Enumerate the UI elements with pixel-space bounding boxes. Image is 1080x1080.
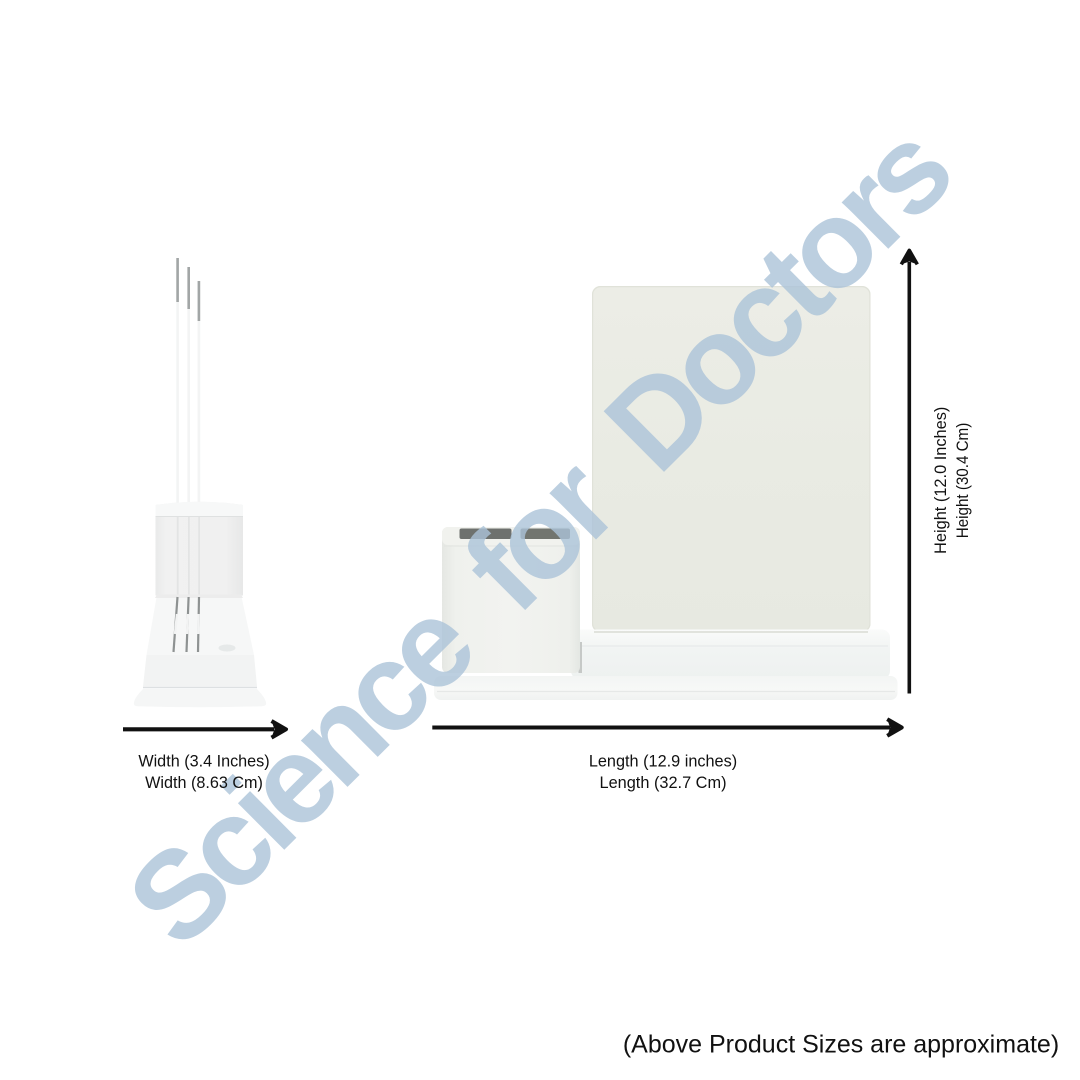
svg-text:Height (30.4 Cm): Height (30.4 Cm) xyxy=(954,423,972,539)
svg-text:Length (32.7 Cm): Length (32.7 Cm) xyxy=(600,774,727,792)
svg-text:Length (12.9 inches): Length (12.9 inches) xyxy=(589,753,737,771)
svg-text:(Above Product Sizes are appro: (Above Product Sizes are approximate) xyxy=(623,1031,1059,1059)
svg-text:Height (12.0 Inches): Height (12.0 Inches) xyxy=(932,407,950,554)
svg-text:Width (3.4 Inches): Width (3.4 Inches) xyxy=(138,753,269,771)
svg-text:Width (8.63 Cm): Width (8.63 Cm) xyxy=(145,774,263,792)
